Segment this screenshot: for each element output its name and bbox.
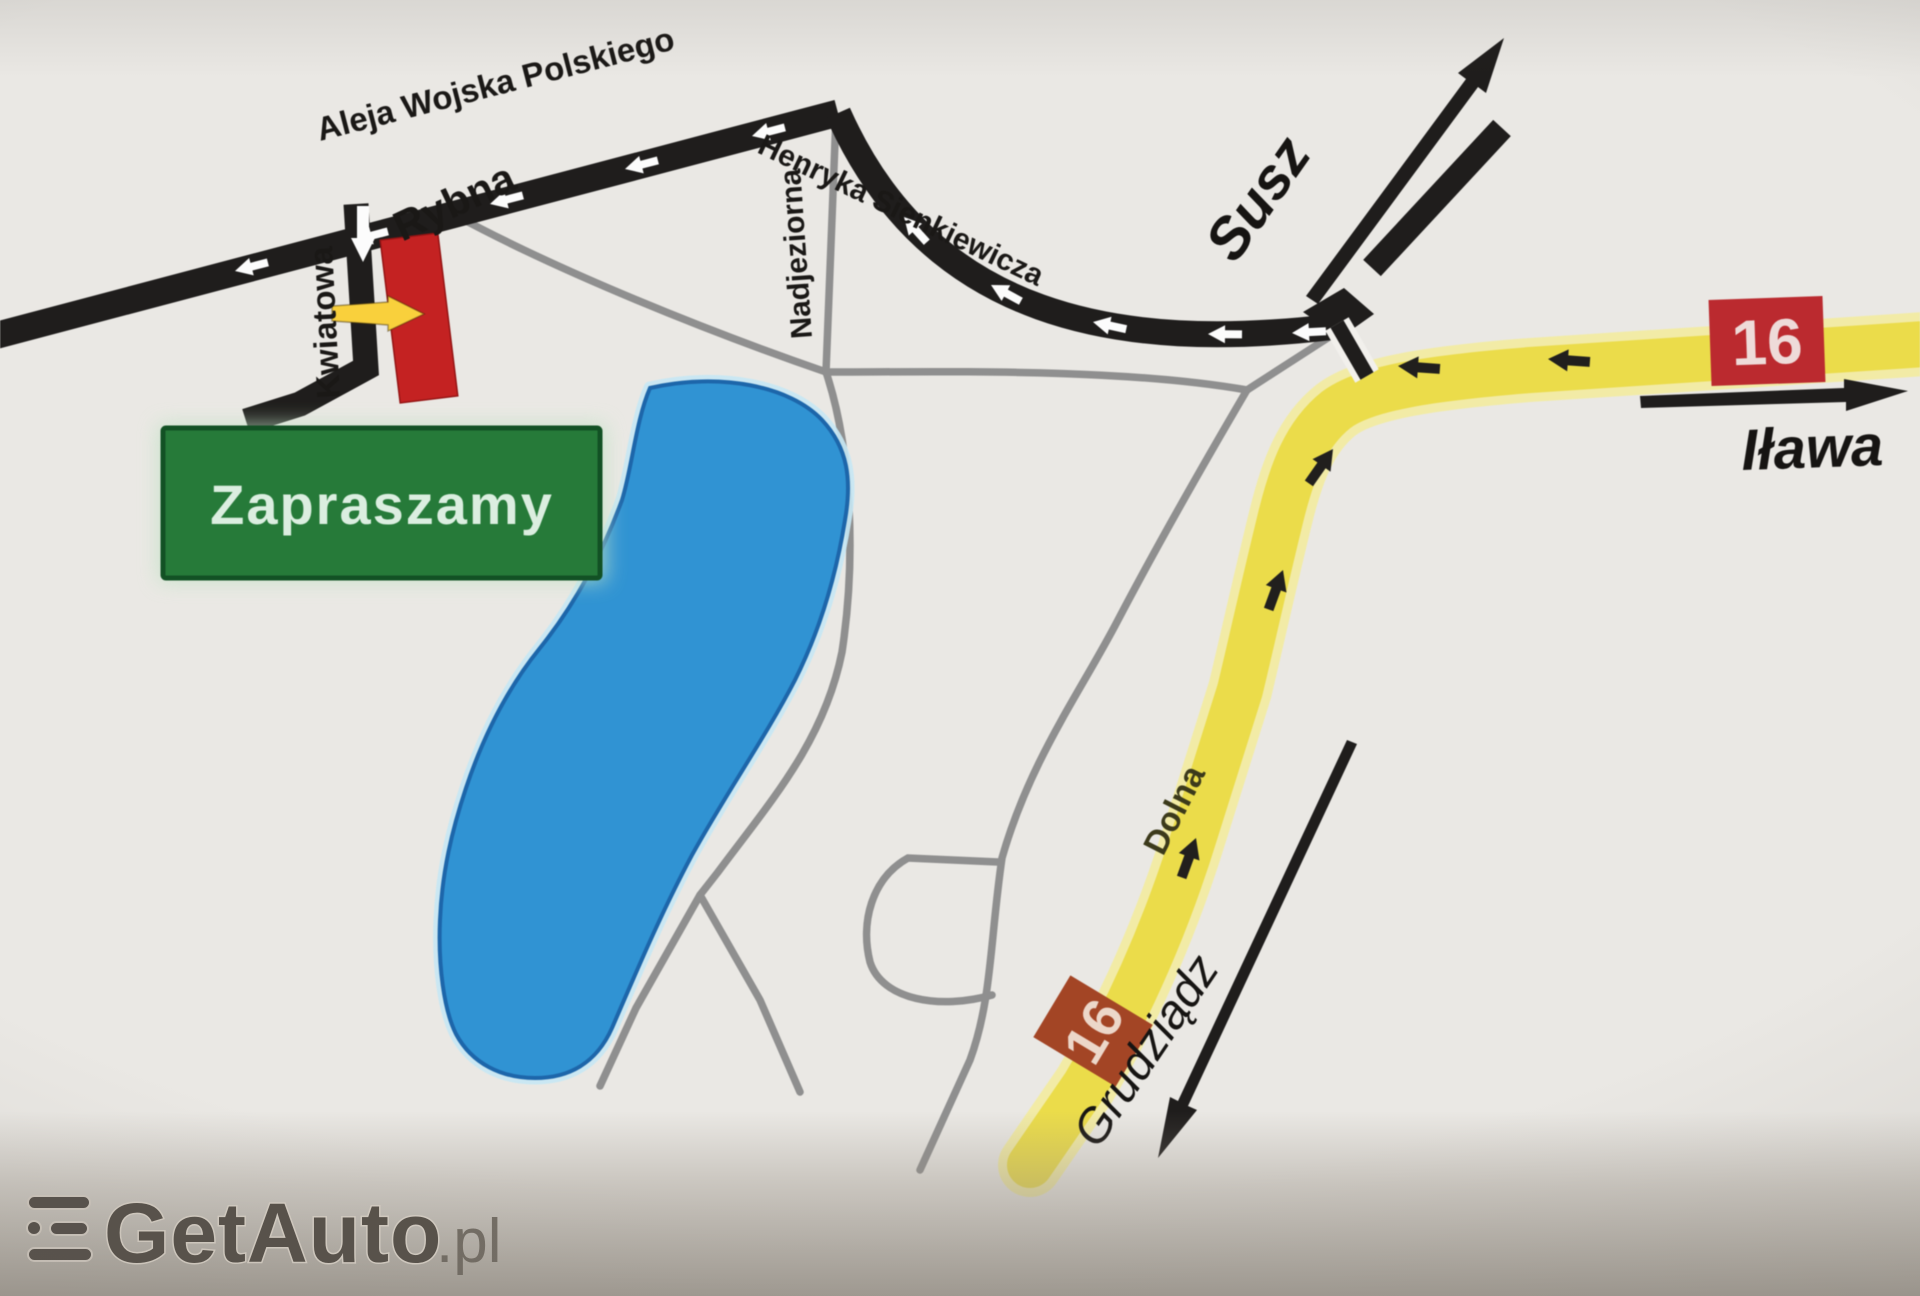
getauto-logo-icon [27,1196,92,1261]
watermark-tld-text: .pl [436,1207,501,1276]
getauto-logo: GetAuto .pl [27,1186,501,1280]
watermark-brand-text: GetAuto [104,1186,442,1280]
map-screenshot: Zapraszamy 16 16 Aleja Wojska Polskiego … [0,0,1920,1296]
watermark: GetAuto .pl [0,0,1920,1296]
